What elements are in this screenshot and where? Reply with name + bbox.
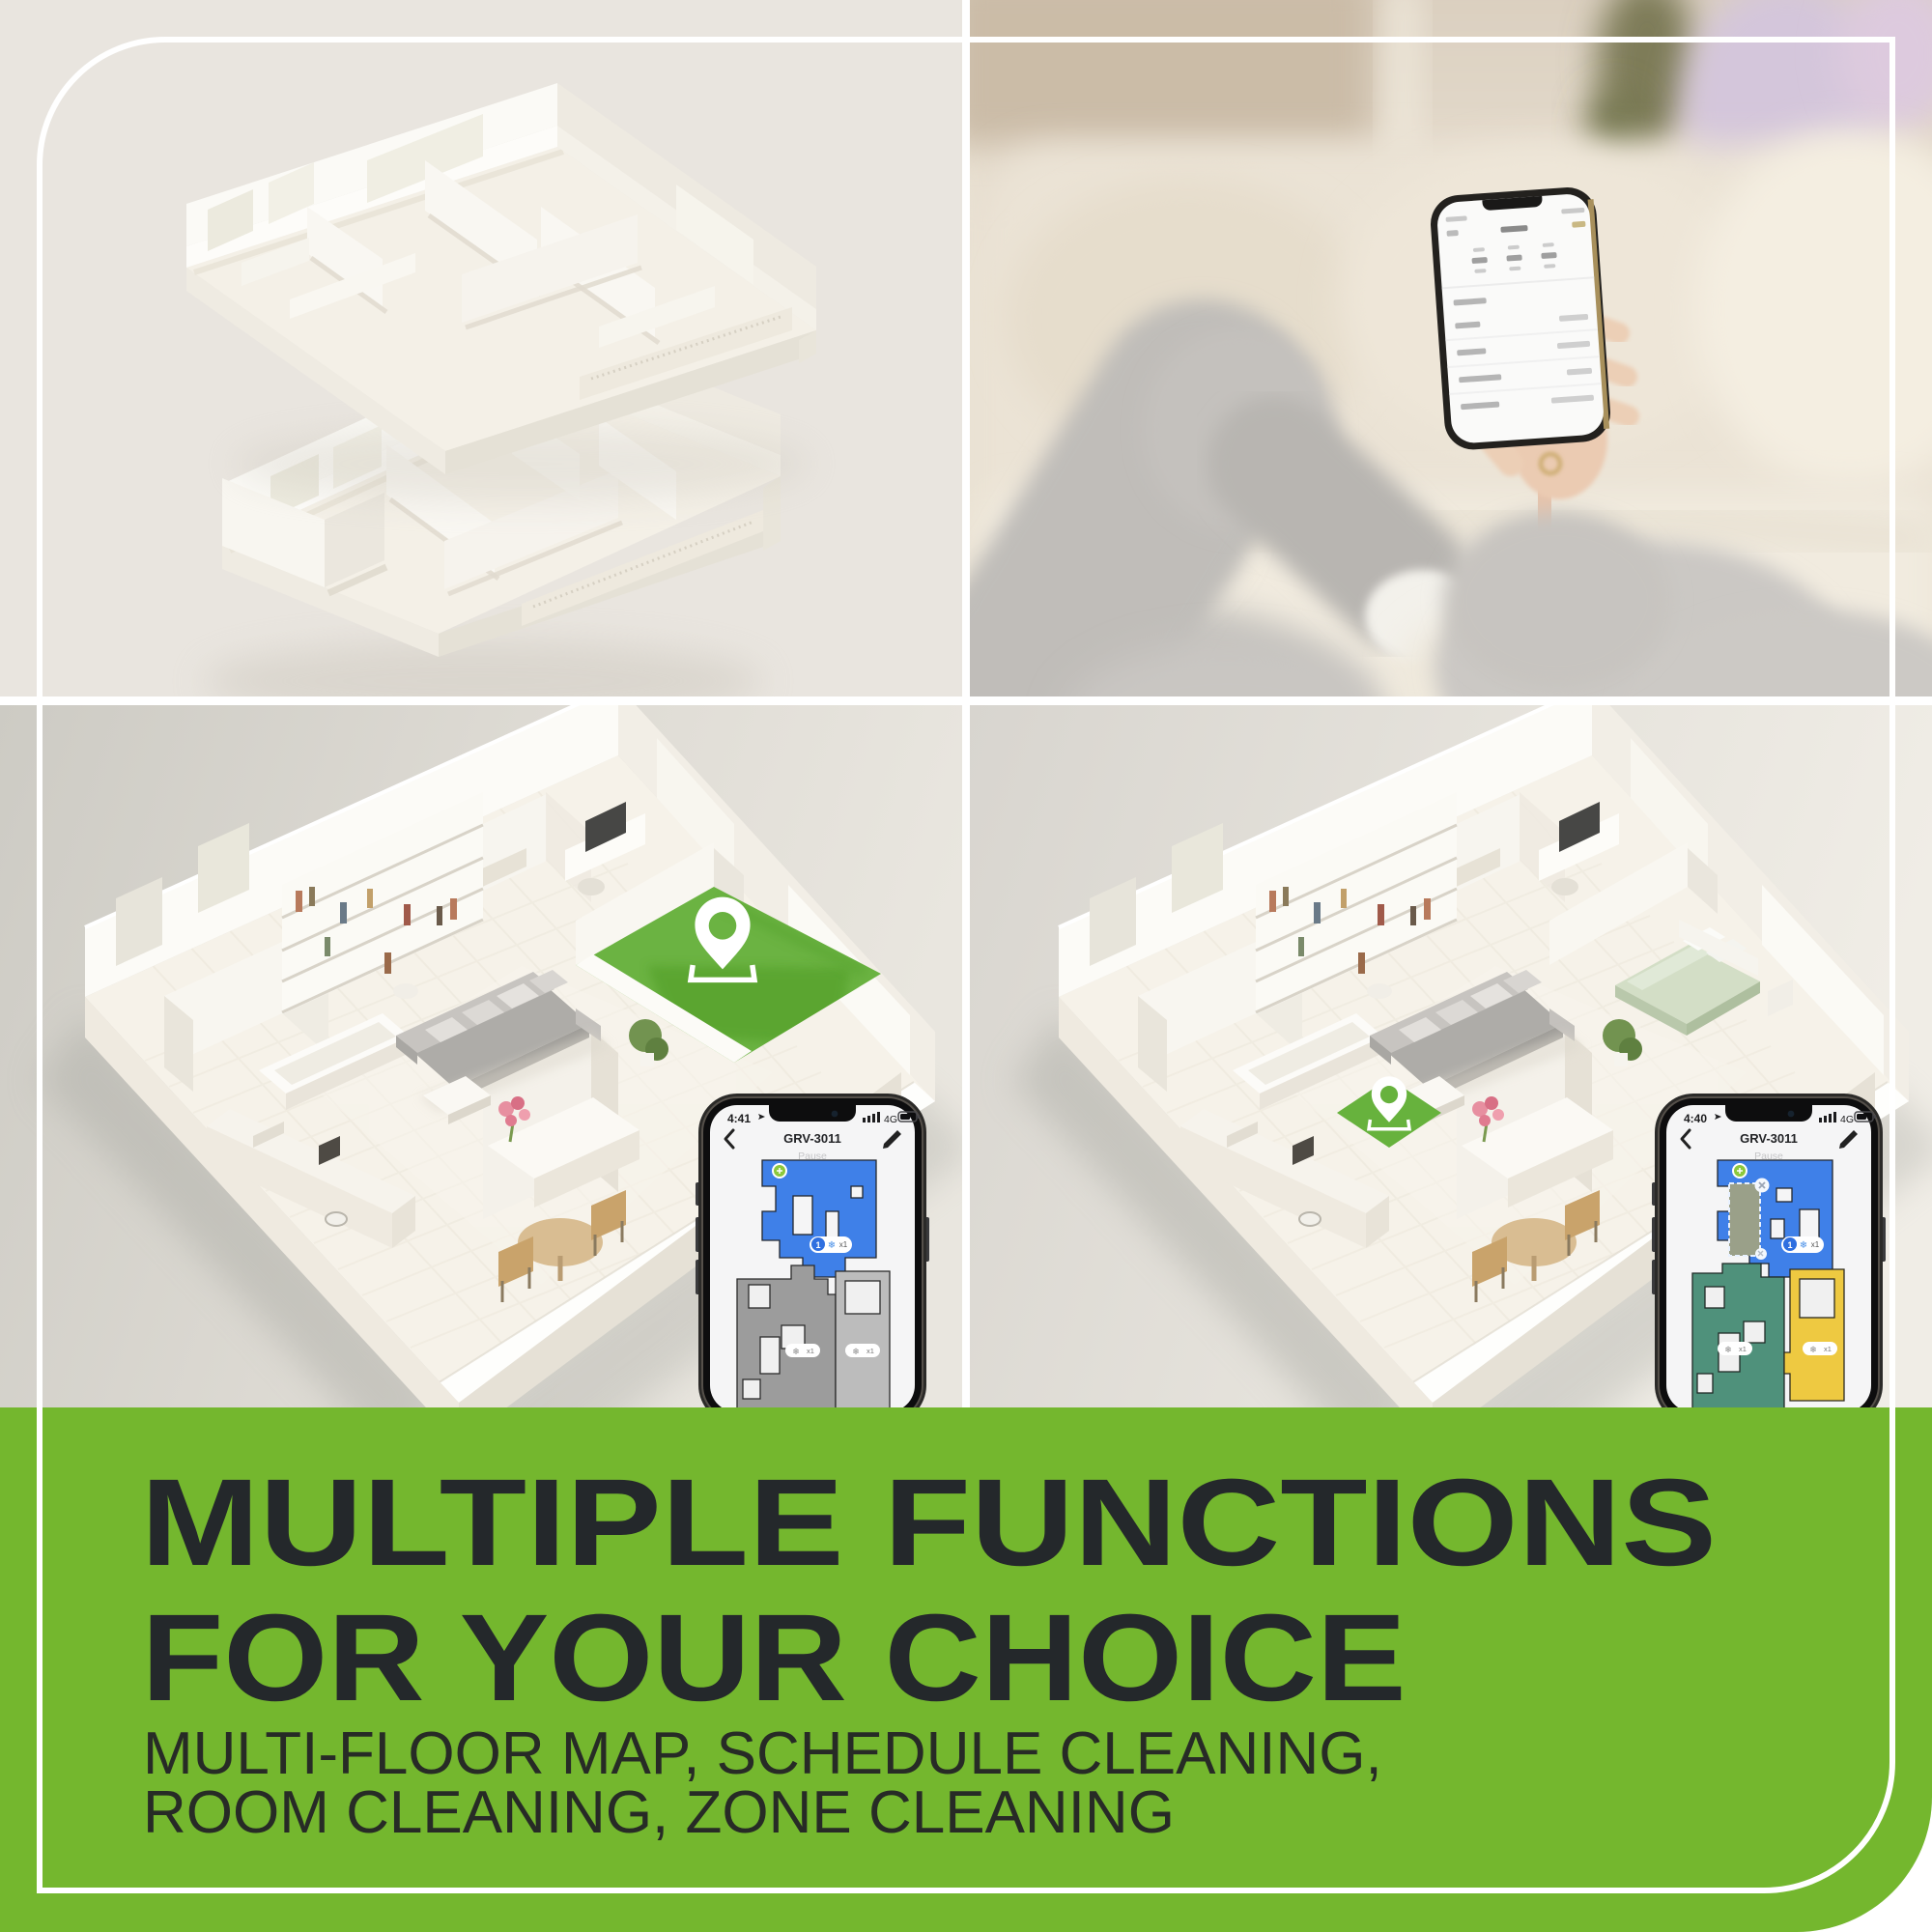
- svg-text:❄: ❄: [1800, 1240, 1807, 1251]
- svg-text:x1: x1: [1824, 1345, 1832, 1353]
- svg-text:4:41: 4:41: [727, 1112, 751, 1125]
- svg-text:GRV-3011: GRV-3011: [1740, 1131, 1798, 1146]
- svg-text:MULTI-FLOOR MAP, SCHEDULE CLEA: MULTI-FLOOR MAP, SCHEDULE CLEANING,: [143, 1720, 1382, 1787]
- svg-text:4G: 4G: [884, 1114, 897, 1125]
- svg-text:❄: ❄: [1809, 1345, 1817, 1354]
- svg-text:4:40: 4:40: [1684, 1112, 1707, 1125]
- svg-text:❄: ❄: [828, 1240, 836, 1251]
- svg-text:FOR YOUR CHOICE: FOR YOUR CHOICE: [141, 1589, 1406, 1727]
- svg-text:x1: x1: [867, 1347, 874, 1355]
- svg-text:x1: x1: [1811, 1240, 1820, 1249]
- svg-text:❄: ❄: [1724, 1345, 1732, 1354]
- svg-text:❄: ❄: [852, 1347, 860, 1356]
- svg-text:1: 1: [815, 1240, 820, 1250]
- svg-text:GRV-3011: GRV-3011: [783, 1131, 841, 1146]
- svg-text:x1: x1: [839, 1240, 848, 1249]
- svg-text:1: 1: [1787, 1240, 1792, 1250]
- svg-text:x1: x1: [807, 1347, 814, 1355]
- svg-text:MULTIPLE FUNCTIONS: MULTIPLE FUNCTIONS: [141, 1454, 1717, 1592]
- svg-text:4G: 4G: [1840, 1114, 1854, 1125]
- svg-text:ROOM CLEANING, ZONE CLEANING: ROOM CLEANING, ZONE CLEANING: [143, 1779, 1175, 1846]
- svg-text:x1: x1: [1739, 1345, 1747, 1353]
- svg-text:❄: ❄: [792, 1347, 800, 1356]
